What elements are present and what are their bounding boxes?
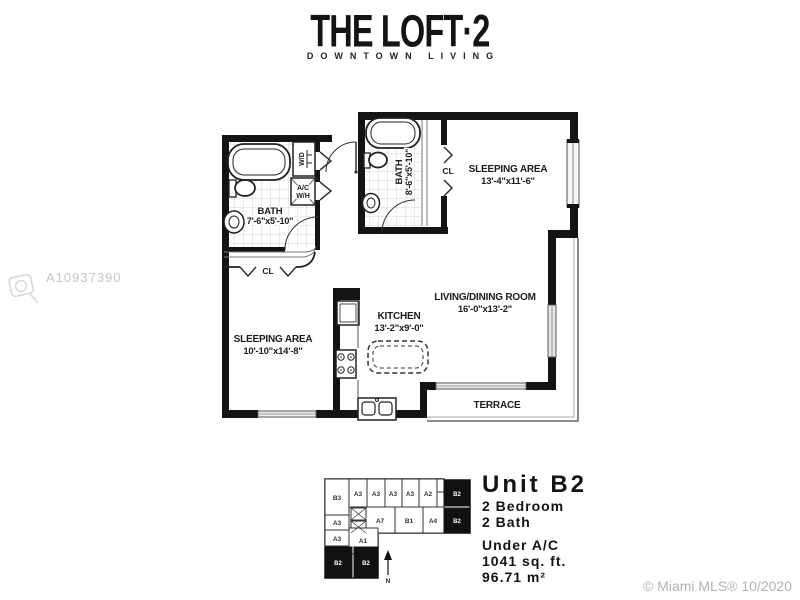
- unit-bedrooms: 2 Bedroom: [482, 498, 587, 514]
- keyplan-label-A3-3: A3: [389, 491, 398, 498]
- sink-left: [224, 211, 244, 233]
- unit-ac-label: Under A/C: [482, 537, 587, 553]
- window-right-bedroom: [567, 139, 579, 208]
- bathtub-left: [228, 144, 290, 180]
- closet-top-bifold-1: [444, 147, 452, 163]
- room-dims-sleeping-left: 10'-10"x14'-8": [243, 346, 302, 357]
- room-label-sleeping-left: SLEEPING AREA: [234, 334, 313, 345]
- unit-title: Unit B2: [482, 472, 587, 498]
- keyplan-label-B1: B1: [405, 518, 414, 525]
- keyplan-label-A3-6: A3: [333, 536, 342, 543]
- keyplan-label-A3-5: A3: [333, 520, 342, 527]
- keyplan-stair-cell: [437, 479, 444, 492]
- mls-id-watermark: A10937390: [46, 270, 122, 285]
- copyright-watermark: © Miami MLS® 10/2020: [643, 578, 792, 594]
- water-heater-label: W/H: [296, 193, 310, 200]
- sink-top: [363, 194, 380, 213]
- keyplan-label-A2: A2: [424, 491, 433, 498]
- window-left-bedroom: [258, 411, 316, 417]
- mls-watermark: A10937390: [6, 270, 122, 285]
- window-terrace-door: [436, 383, 526, 389]
- room-label-sleeping-top: SLEEPING AREA: [469, 164, 548, 175]
- unit-sqft: 1041 sq. ft.: [482, 553, 587, 569]
- room-label-living: LIVING/DINING ROOM: [434, 292, 535, 303]
- closet-top-label: CL: [442, 166, 453, 176]
- wd-bifold-door: [320, 152, 331, 170]
- keyplan-label-B2-right: B2: [453, 519, 461, 525]
- toilet-left: [229, 180, 255, 197]
- room-dims-sleeping-top: 13'-4"x11'-6": [481, 176, 535, 187]
- unit-baths: 2 Bath: [482, 514, 587, 530]
- keyplan-label-B2-topright: B2: [453, 492, 461, 498]
- entry-door: [326, 142, 358, 174]
- closet-top-bifold-2: [444, 180, 452, 196]
- closet-left-bifold-1: [240, 267, 256, 276]
- bathtub-top: [366, 118, 420, 148]
- washer-dryer-closet: W/D: [293, 142, 315, 176]
- keyplan-label-B2-bottom-1: B2: [334, 561, 342, 567]
- kitchen-island: [368, 341, 428, 373]
- north-arrow-icon: N: [384, 550, 392, 585]
- kitchen-sink: [358, 398, 396, 420]
- ac-bifold-door: [320, 182, 331, 200]
- unit-sqm: 96.71 m²: [482, 569, 587, 585]
- floorplan-page: THE LOFT·2 DOWNTOWN LIVING: [0, 0, 800, 600]
- refrigerator: [337, 301, 359, 325]
- keyplan-label-A3-1: A3: [354, 491, 363, 498]
- floorplan-drawing: W/D A/C W/H: [0, 0, 800, 600]
- keyplan-label-A3-2: A3: [372, 491, 381, 498]
- washer-dryer-label: W/D: [299, 152, 306, 166]
- closet-left-label: CL: [262, 266, 273, 276]
- room-dims-living: 16'-0"x13'-2": [458, 304, 512, 315]
- room-dims-bath-top: 8'-6"x5'-10": [404, 149, 414, 195]
- keyplan-label-A7: A7: [376, 518, 385, 525]
- keyplan: B3 A3 A3 A3 A3 A2 B2 A3 A7 B1 A4 B2 A3 A…: [325, 479, 470, 585]
- ac-water-heater-closet: A/C W/H: [291, 178, 315, 205]
- room-dims-kitchen: 13'-2"x9'-0": [374, 323, 423, 334]
- room-label-terrace: TERRACE: [474, 400, 521, 411]
- toilet-top: [364, 153, 387, 169]
- closet-left-bifold-2: [280, 267, 296, 276]
- room-dims-bath-left: 7'-6"x5'-10": [247, 216, 293, 226]
- north-label: N: [386, 578, 391, 585]
- unit-info: Unit B2 2 Bedroom 2 Bath Under A/C 1041 …: [482, 472, 587, 585]
- stove: [336, 350, 356, 378]
- keyplan-label-B3: B3: [333, 495, 342, 502]
- room-label-kitchen: KITCHEN: [377, 311, 420, 322]
- ac-label: A/C: [297, 185, 309, 192]
- window-living-slider: [548, 305, 556, 357]
- keyplan-label-A4: A4: [429, 518, 438, 525]
- keyplan-label-A3-4: A3: [406, 491, 415, 498]
- keyplan-label-A1: A1: [359, 538, 368, 545]
- keyplan-label-B2-bottom-2: B2: [362, 561, 370, 567]
